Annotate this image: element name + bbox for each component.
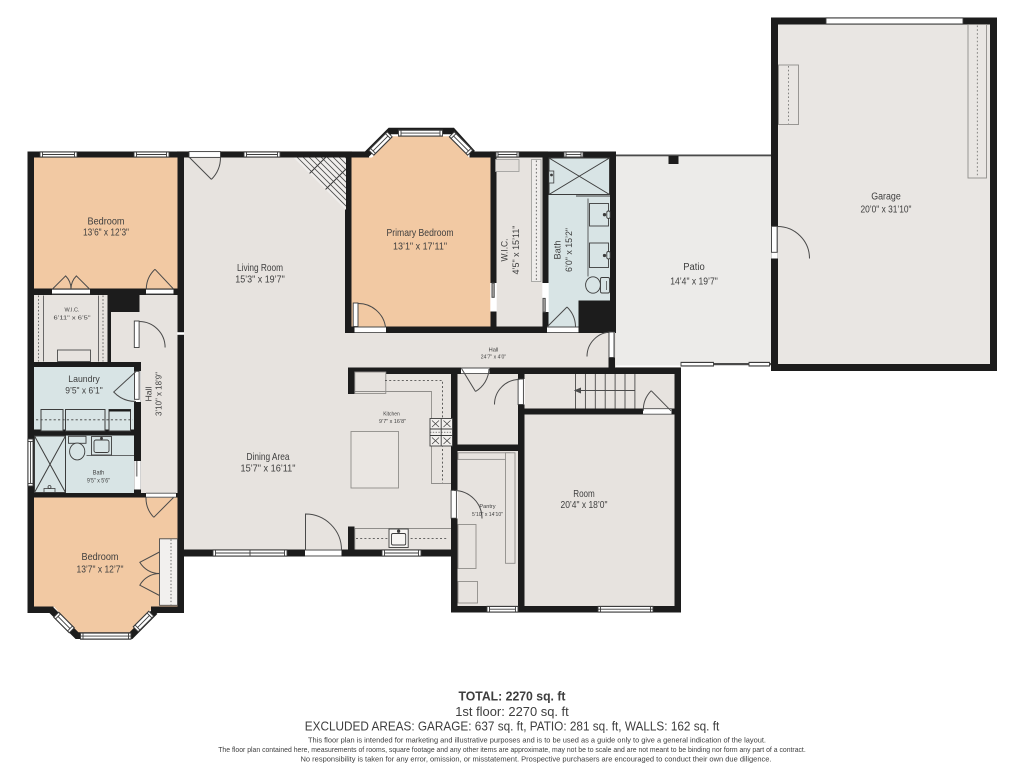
svg-text:9’5" x 6’1": 9’5" x 6’1" — [65, 386, 103, 397]
svg-text:Hall: Hall — [145, 386, 154, 401]
svg-text:13’1" x 17’11": 13’1" x 17’11" — [393, 242, 447, 253]
svg-text:EXCLUDED AREAS: GARAGE: 637 sq: EXCLUDED AREAS: GARAGE: 637 sq. ft, PATI… — [305, 719, 720, 734]
svg-text:13’7" x 12’7": 13’7" x 12’7" — [77, 565, 124, 576]
svg-text:24’7" x 4’0": 24’7" x 4’0" — [481, 355, 506, 361]
svg-text:Bedroom: Bedroom — [88, 217, 125, 228]
svg-text:1st floor: 2270 sq. ft: 1st floor: 2270 sq. ft — [455, 704, 569, 719]
svg-text:9’5" x 5’6": 9’5" x 5’6" — [87, 479, 110, 485]
svg-text:Bath: Bath — [93, 471, 105, 477]
svg-text:20’0" x 31’10": 20’0" x 31’10" — [861, 205, 912, 216]
svg-text:W.I.C.: W.I.C. — [65, 308, 80, 314]
svg-text:5’10" x 14’10": 5’10" x 14’10" — [472, 512, 503, 518]
svg-text:20’4" x 18’0": 20’4" x 18’0" — [561, 500, 608, 511]
svg-text:This floor plan is intended fo: This floor plan is intended for marketin… — [308, 736, 766, 745]
svg-text:Hall: Hall — [489, 348, 499, 354]
svg-text:No responsibility is taken for: No responsibility is taken for any error… — [301, 755, 772, 764]
svg-text:3’10" x 18’9": 3’10" x 18’9" — [155, 372, 164, 416]
svg-text:15’3" x 19’7": 15’3" x 19’7" — [235, 275, 285, 286]
svg-text:4’5" x 15’11": 4’5" x 15’11" — [511, 226, 521, 275]
svg-text:Bedroom: Bedroom — [82, 552, 119, 563]
svg-text:Garage: Garage — [871, 191, 901, 202]
svg-text:Patio: Patio — [683, 262, 705, 273]
svg-text:15’7" x 16’11": 15’7" x 16’11" — [241, 464, 296, 475]
svg-text:Living Room: Living Room — [237, 263, 283, 274]
svg-text:Pantry: Pantry — [479, 504, 495, 510]
svg-text:6’0" x 15’2": 6’0" x 15’2" — [564, 228, 574, 272]
svg-text:13’6" x 12’3": 13’6" x 12’3" — [83, 228, 129, 239]
svg-text:Room: Room — [573, 489, 595, 500]
svg-text:14’4" x 19’7": 14’4" x 19’7" — [670, 276, 718, 287]
svg-text:TOTAL: 2270 sq. ft: TOTAL: 2270 sq. ft — [459, 689, 567, 704]
svg-text:Laundry: Laundry — [68, 374, 100, 385]
svg-text:Kitchen: Kitchen — [383, 412, 400, 418]
svg-text:9’7" x 16’8": 9’7" x 16’8" — [379, 419, 406, 425]
svg-text:Primary Bedroom: Primary Bedroom — [387, 228, 454, 239]
svg-text:Dining Area: Dining Area — [247, 452, 290, 463]
svg-text:The floor plan contained here,: The floor plan contained here, measureme… — [218, 745, 806, 754]
svg-text:Bath: Bath — [553, 241, 563, 260]
svg-text:6’11" x 6’5": 6’11" x 6’5" — [54, 316, 91, 322]
svg-text:W.I.C.: W.I.C. — [500, 239, 510, 262]
